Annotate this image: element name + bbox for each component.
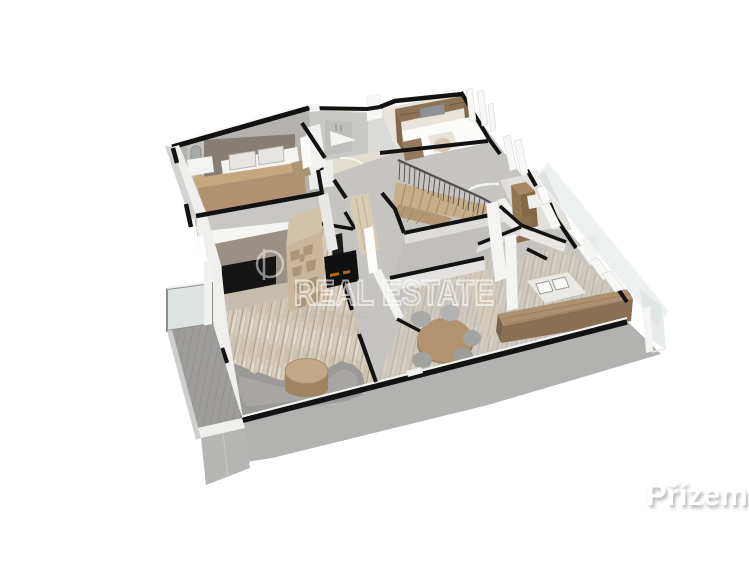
svg-text:REAL ESTATE AGENCY: REAL ESTATE AGENCY — [298, 310, 370, 320]
svg-text:REAL ESTATE: REAL ESTATE — [294, 274, 494, 313]
svg-text:Přízemí: Přízemí — [646, 477, 749, 512]
